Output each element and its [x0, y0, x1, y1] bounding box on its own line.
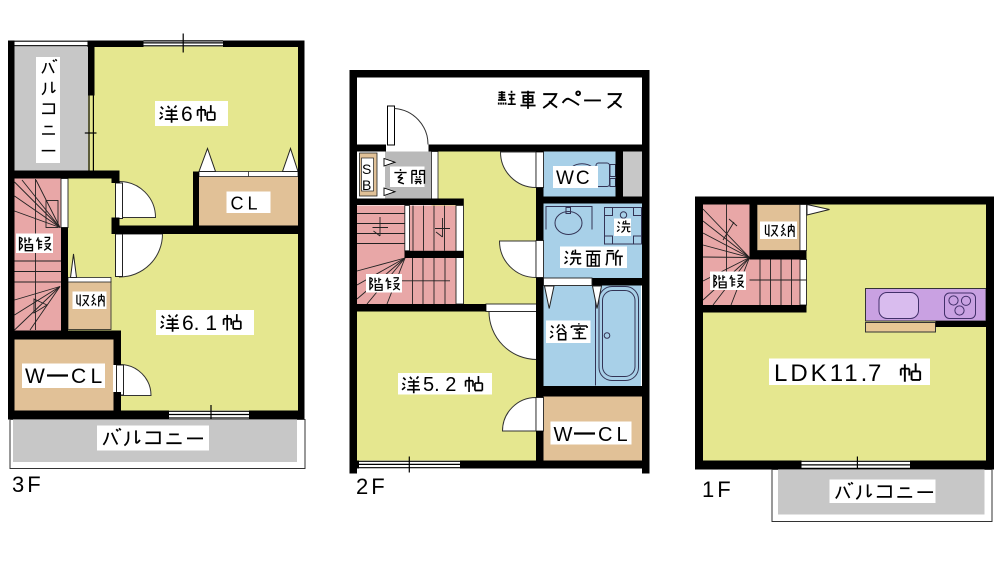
svg-text:3F: 3F	[12, 472, 44, 497]
svg-text:L: L	[617, 424, 628, 446]
svg-text:W: W	[25, 365, 45, 388]
svg-text:L: L	[91, 365, 103, 388]
svg-text:7: 7	[868, 360, 881, 387]
svg-text:W: W	[554, 424, 573, 446]
svg-text:C: C	[598, 424, 612, 446]
svg-text:5. 2: 5. 2	[423, 374, 456, 396]
svg-text:B: B	[362, 177, 371, 193]
svg-text:1F: 1F	[702, 477, 734, 502]
svg-text:C: C	[71, 365, 86, 388]
svg-text:WC: WC	[556, 168, 592, 189]
svg-text:S: S	[362, 161, 371, 177]
svg-text:LDK11.: LDK11.	[774, 360, 870, 387]
svg-text:CL: CL	[231, 194, 262, 214]
svg-text:6. 1: 6. 1	[182, 312, 217, 335]
svg-text:6: 6	[181, 103, 193, 126]
svg-text:2F: 2F	[356, 474, 388, 499]
